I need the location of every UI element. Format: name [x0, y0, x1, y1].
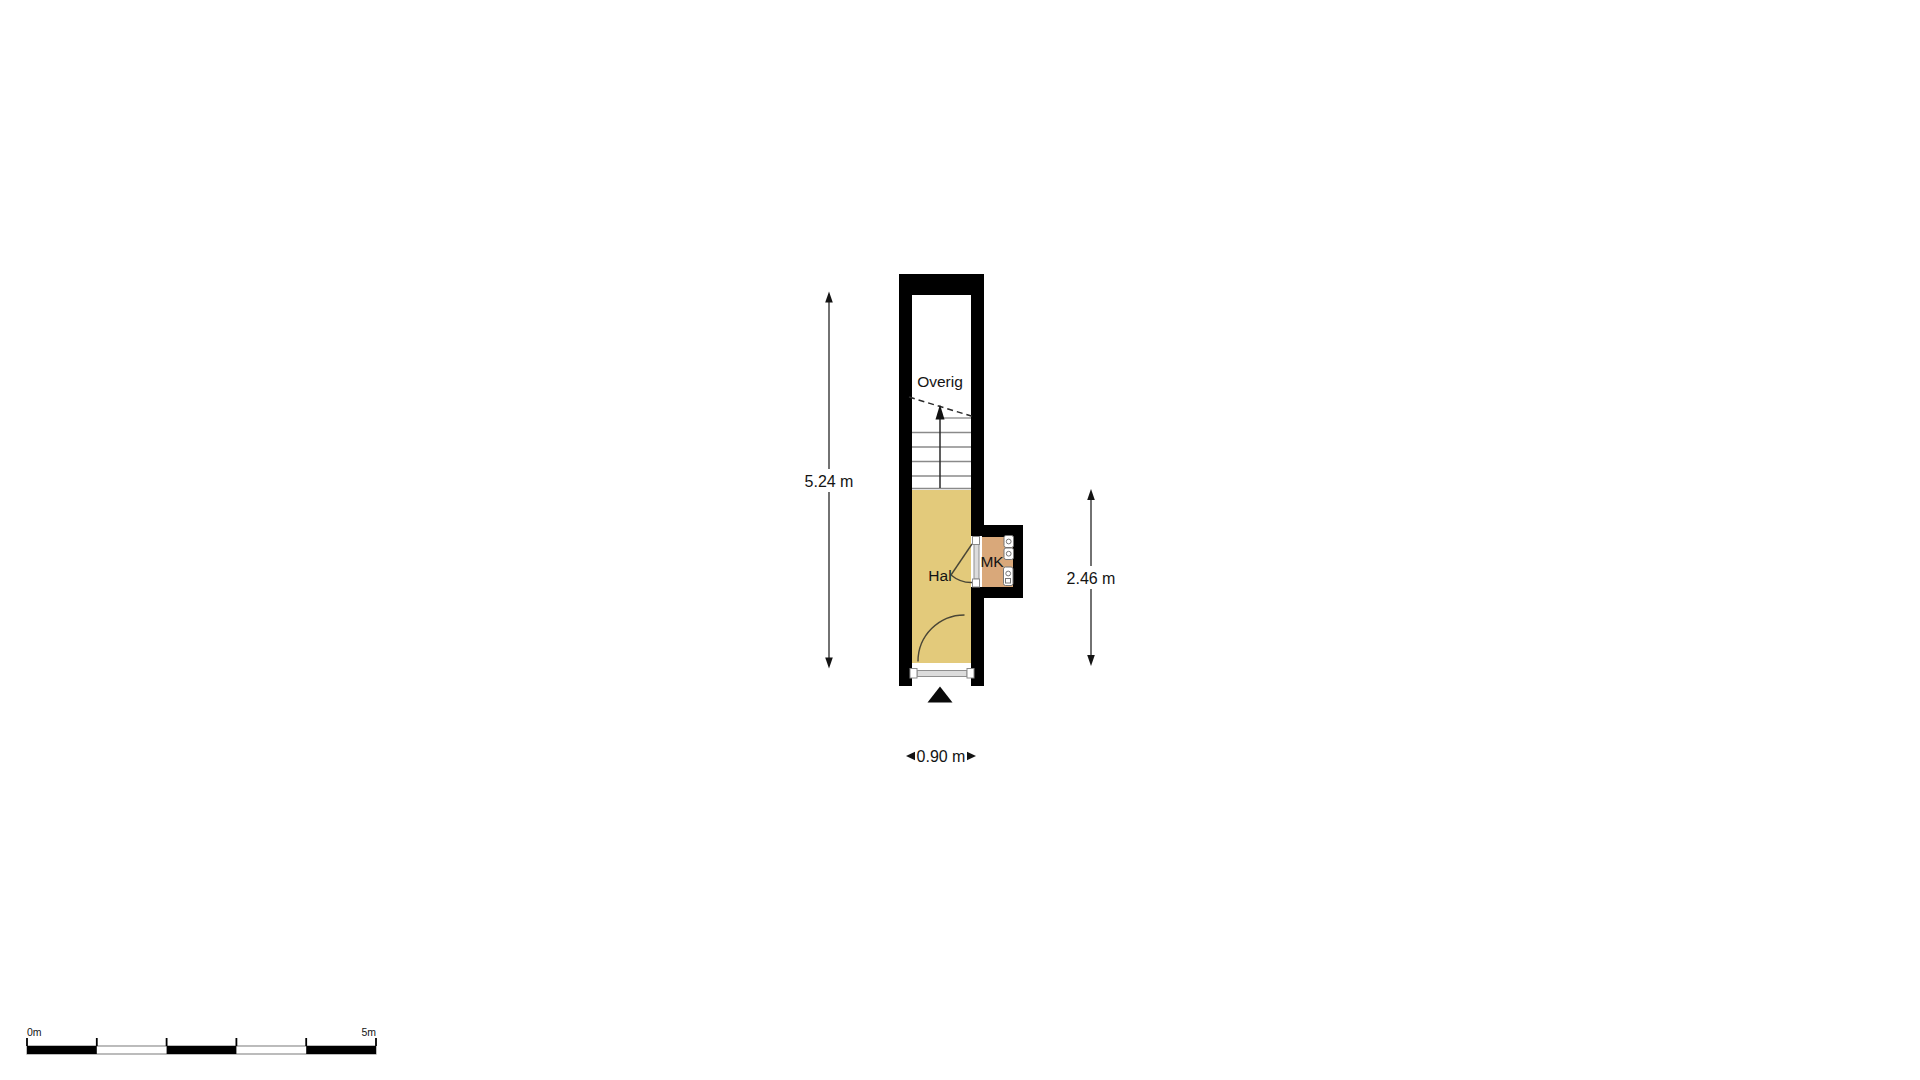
meter-dial-icon — [1006, 539, 1011, 544]
dim-arrowhead-down-icon — [1087, 655, 1095, 666]
entrance-door-jamb-right — [967, 669, 974, 679]
dim-arrowhead-up-icon — [825, 292, 833, 303]
dimension-hal-height: 2.46 m — [1065, 489, 1117, 666]
room-label-hal: Hal — [928, 567, 951, 584]
wall-right — [971, 274, 984, 686]
room-label-overig: Overig — [917, 373, 963, 390]
wall-left — [899, 274, 912, 686]
dimension-total-height: 5.24 m — [803, 292, 855, 669]
scale-bar-segment — [27, 1046, 97, 1054]
meter-dial-icon — [1006, 551, 1011, 556]
entrance-door-jamb-left — [910, 669, 917, 679]
scale-bar-end-label: 5m — [361, 1026, 376, 1038]
scale-bar-segment — [167, 1046, 237, 1054]
entrance-door-panel — [917, 671, 967, 677]
dim-arrowhead-left-icon — [906, 752, 915, 760]
mk-door-jamb-bottom — [973, 579, 980, 587]
scale-bar-start-label: 0m — [27, 1026, 42, 1038]
dim-arrowhead-right-icon — [967, 752, 976, 760]
dimension-hal-height-label: 2.46 m — [1067, 570, 1116, 587]
mk-door-jamb-top — [973, 537, 980, 545]
dim-arrowhead-up-icon — [1087, 489, 1095, 500]
room-label-mk: MK — [980, 553, 1004, 570]
floorplan-canvas: Overig Hal MK 5.24 m 2.46 m 0.90 m — [0, 0, 1920, 1080]
dimension-width-label: 0.90 m — [917, 748, 966, 765]
dim-arrowhead-down-icon — [825, 658, 833, 669]
scale-bar-segment — [306, 1046, 376, 1054]
meter-switch-icon — [1006, 579, 1011, 584]
scale-bar: 0m 5m — [27, 1026, 376, 1054]
dimension-total-height-label: 5.24 m — [805, 473, 854, 490]
mk-door-panel — [974, 545, 979, 580]
entrance-marker-icon — [928, 687, 953, 703]
dimension-width: 0.90 m — [906, 748, 976, 765]
scale-bar-ticks — [27, 1038, 376, 1046]
meter-dial-icon — [1006, 571, 1011, 576]
